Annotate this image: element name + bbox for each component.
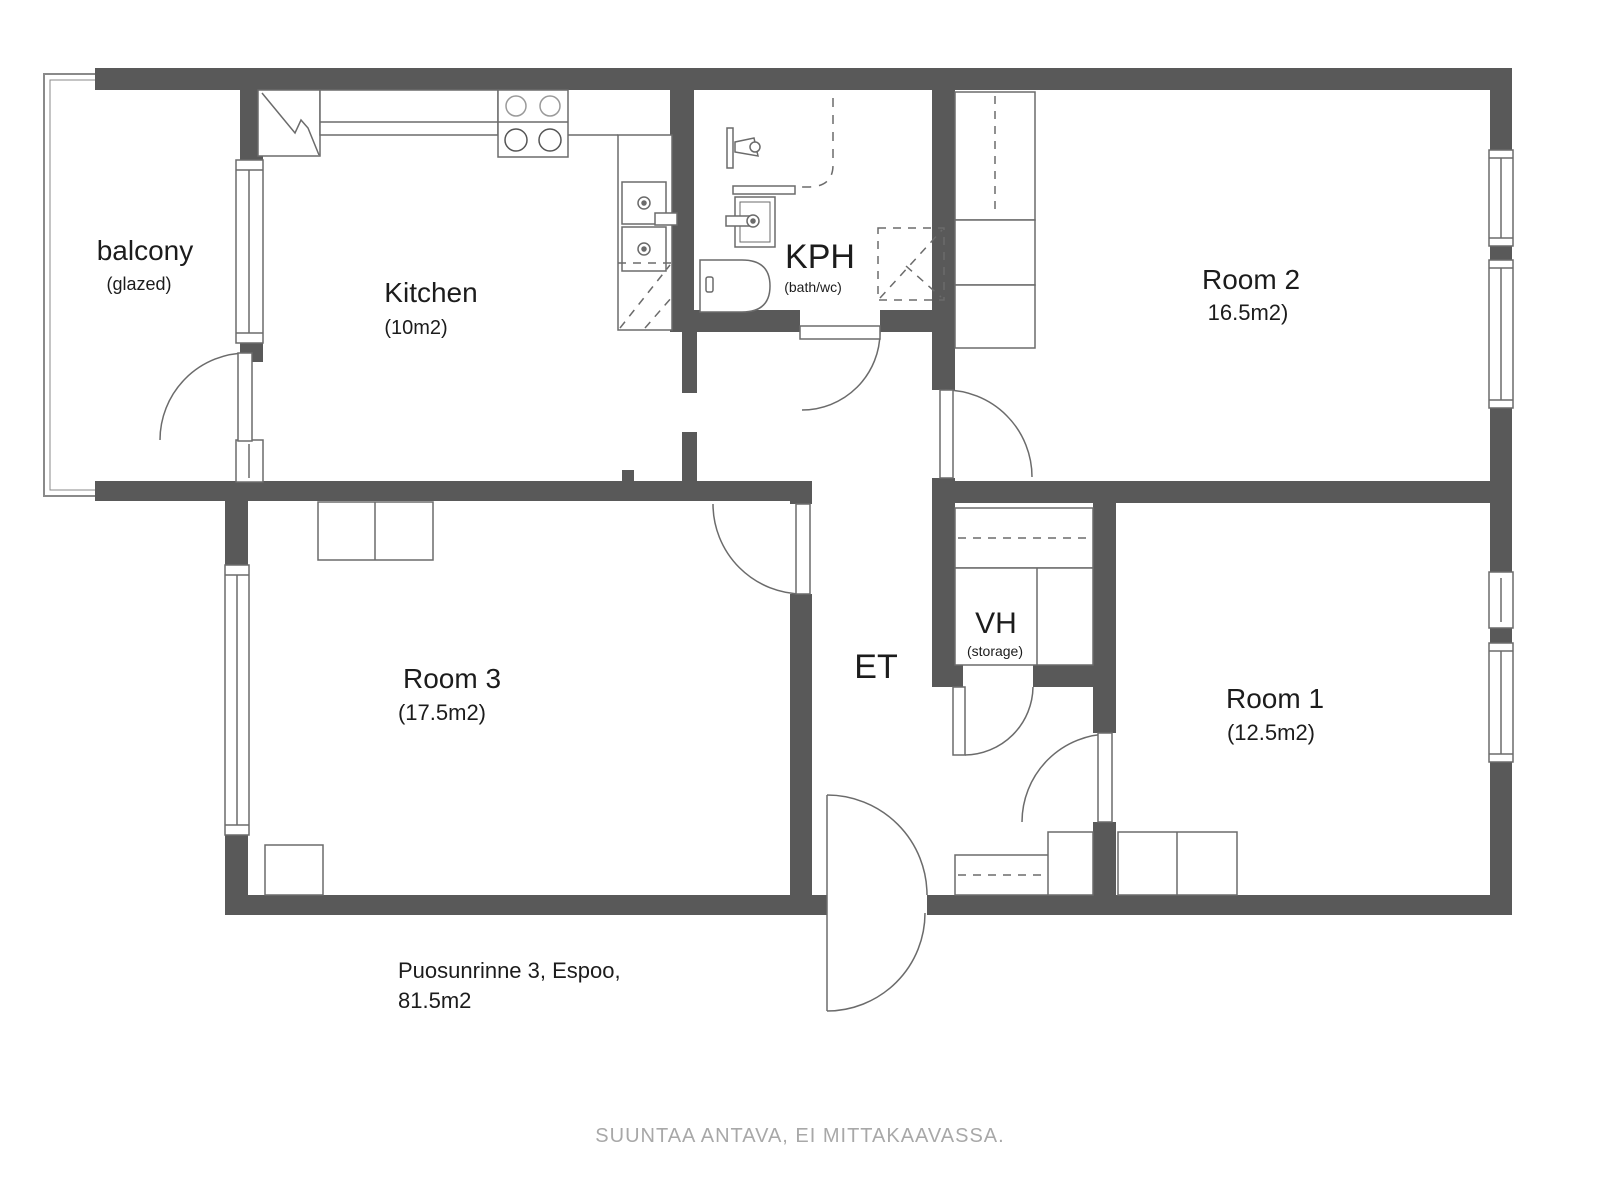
wall-segment: [932, 481, 1512, 503]
door-room2: [940, 390, 1032, 478]
cabinet: [1048, 832, 1093, 895]
kitchen-label: Kitchen: [384, 277, 477, 308]
fridge-icon: [258, 90, 320, 156]
kph-sublabel: (bath/wc): [784, 279, 842, 295]
room3-furniture: [265, 502, 433, 895]
window-room3-west: [225, 565, 249, 835]
glazing-line-inner: [50, 80, 95, 490]
kitchen-sublabel: (10m2): [384, 317, 447, 339]
floor-plan-drawing: balcony (glazed) Kitchen (10m2) KPH (bat…: [0, 0, 1600, 1200]
wall-segment: [1093, 822, 1116, 895]
wall-segment: [670, 88, 694, 332]
wall-segment: [95, 481, 812, 501]
wall-segment: [682, 332, 697, 393]
window-room1-east-1: [1489, 572, 1513, 628]
door-room1: [1022, 733, 1112, 822]
door-kph: [800, 326, 880, 410]
wall-segment: [932, 665, 963, 687]
hall-furniture: [955, 832, 1093, 895]
wall-segment: [932, 332, 955, 390]
window-room2-east-2: [1489, 260, 1513, 408]
wall-segment: [932, 88, 955, 332]
vh-interior: [955, 508, 1093, 665]
wall-segment: [670, 310, 800, 332]
wall-segment: [1490, 246, 1512, 260]
wall-segment: [1490, 762, 1512, 915]
wall-segment: [1093, 503, 1116, 733]
kitchen-counter: [320, 90, 672, 330]
wall-segment: [225, 500, 248, 565]
room3-sublabel: (17.5m2): [398, 700, 486, 725]
shower-screen: [733, 186, 795, 194]
wall-segment: [880, 310, 932, 332]
balcony-glazing-outline: [44, 74, 95, 496]
cabinet: [265, 845, 323, 895]
wall-segment: [1490, 628, 1512, 643]
wall-segment: [790, 594, 812, 895]
balcony-sublabel: (glazed): [106, 274, 171, 294]
annotations: Puosunrinne 3, Espoo, 81.5m2 SUUNTAA ANT…: [398, 958, 1005, 1147]
kph-label: KPH: [785, 238, 855, 276]
walls: [95, 68, 1512, 915]
room1-furniture: [1118, 832, 1237, 895]
window-room1-east-2: [1489, 643, 1513, 762]
door-balcony: [160, 353, 252, 441]
toilet-icon: [700, 260, 770, 312]
address-line-1: Puosunrinne 3, Espoo,: [398, 958, 621, 983]
wall-segment: [932, 503, 955, 685]
wall-vent-nub: [622, 470, 634, 482]
wall-segment: [95, 68, 1512, 90]
wall-segment: [225, 895, 827, 915]
window-balcony-kitchen-small: [236, 440, 263, 482]
wall-segment: [1033, 665, 1093, 687]
window-room2-east-1: [1489, 150, 1513, 246]
wall-segment: [927, 895, 1512, 915]
wall-segment: [1490, 68, 1512, 150]
wardrobe: [318, 502, 433, 560]
window-balcony-kitchen: [236, 160, 263, 343]
shower-icon: [727, 128, 760, 168]
room2-sublabel: 16.5m2): [1208, 300, 1289, 325]
room1-sublabel: (12.5m2): [1227, 720, 1315, 745]
door-room3: [713, 504, 810, 594]
vh-label: VH: [975, 607, 1017, 640]
door-vh: [953, 687, 1033, 755]
balcony-label: balcony: [97, 235, 194, 266]
door-entry: [827, 795, 927, 1011]
address-line-2: 81.5m2: [398, 988, 471, 1013]
et-label: ET: [854, 648, 897, 686]
glazing-line: [44, 74, 95, 496]
wall-segment: [790, 481, 812, 504]
room2-label: Room 2: [1202, 264, 1300, 295]
room3-label: Room 3: [403, 663, 501, 694]
room1-label: Room 1: [1226, 683, 1324, 714]
stove-icon: [498, 90, 568, 157]
wardrobe: [1118, 832, 1237, 895]
wall-segment: [225, 835, 248, 895]
floor-plan-page: balcony (glazed) Kitchen (10m2) KPH (bat…: [0, 0, 1600, 1200]
shower-curtain-dashed: [795, 98, 833, 187]
vh-sublabel: (storage): [967, 643, 1023, 659]
wall-segment: [682, 432, 697, 500]
bath-sink-icon: [726, 197, 775, 247]
room2-furniture: [955, 92, 1035, 348]
wardrobe: [955, 92, 1035, 348]
disclaimer-footer: SUUNTAA ANTAVA, EI MITTAKAAVASSA.: [595, 1125, 1004, 1147]
